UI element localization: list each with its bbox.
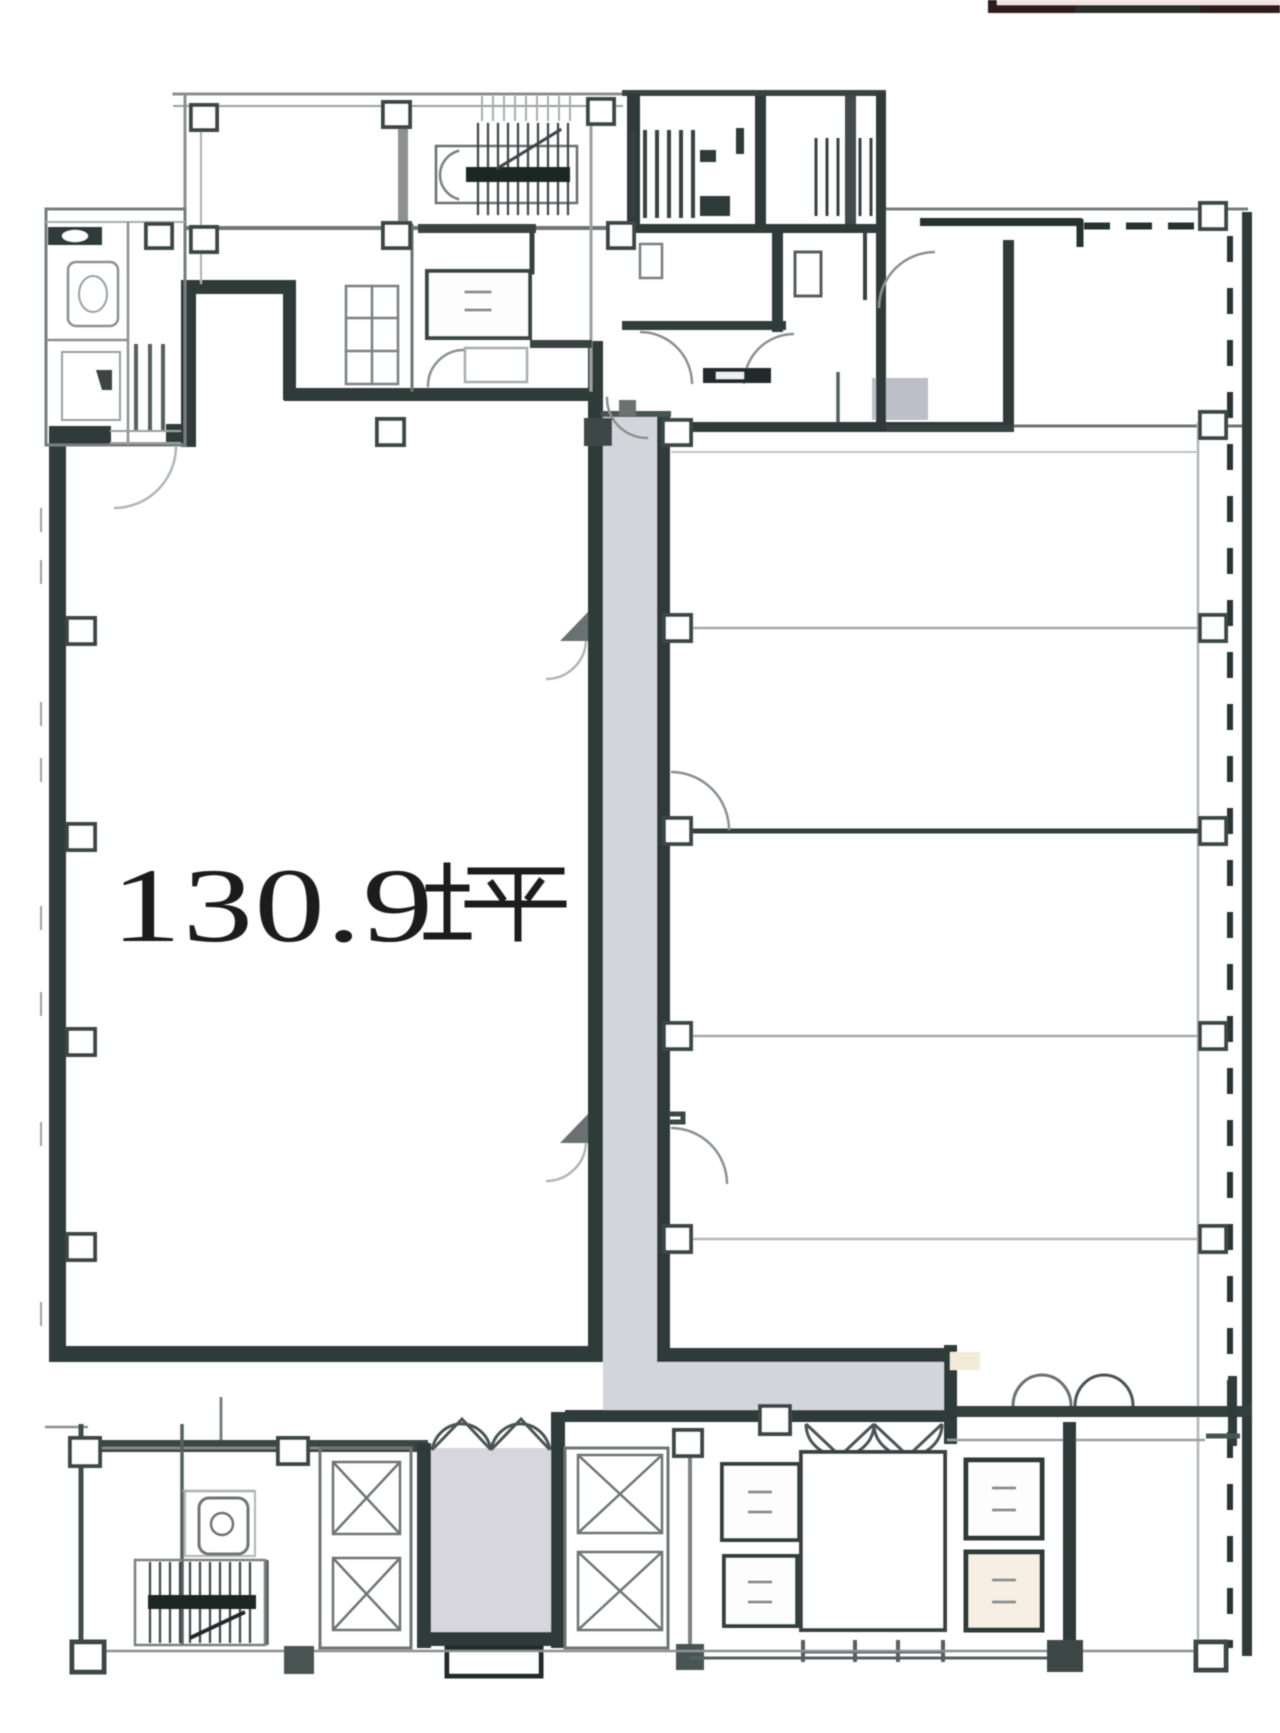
- svg-text:130.9: 130.9: [111, 847, 434, 964]
